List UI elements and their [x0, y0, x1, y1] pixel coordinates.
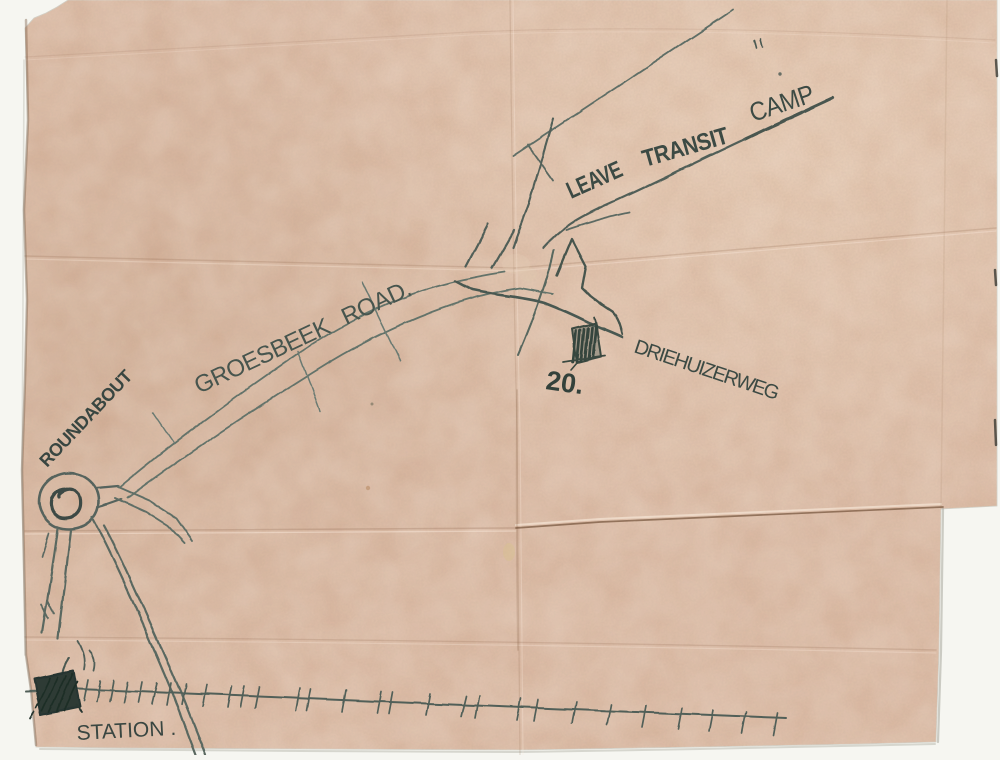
svg-text:20.: 20.: [544, 365, 585, 400]
